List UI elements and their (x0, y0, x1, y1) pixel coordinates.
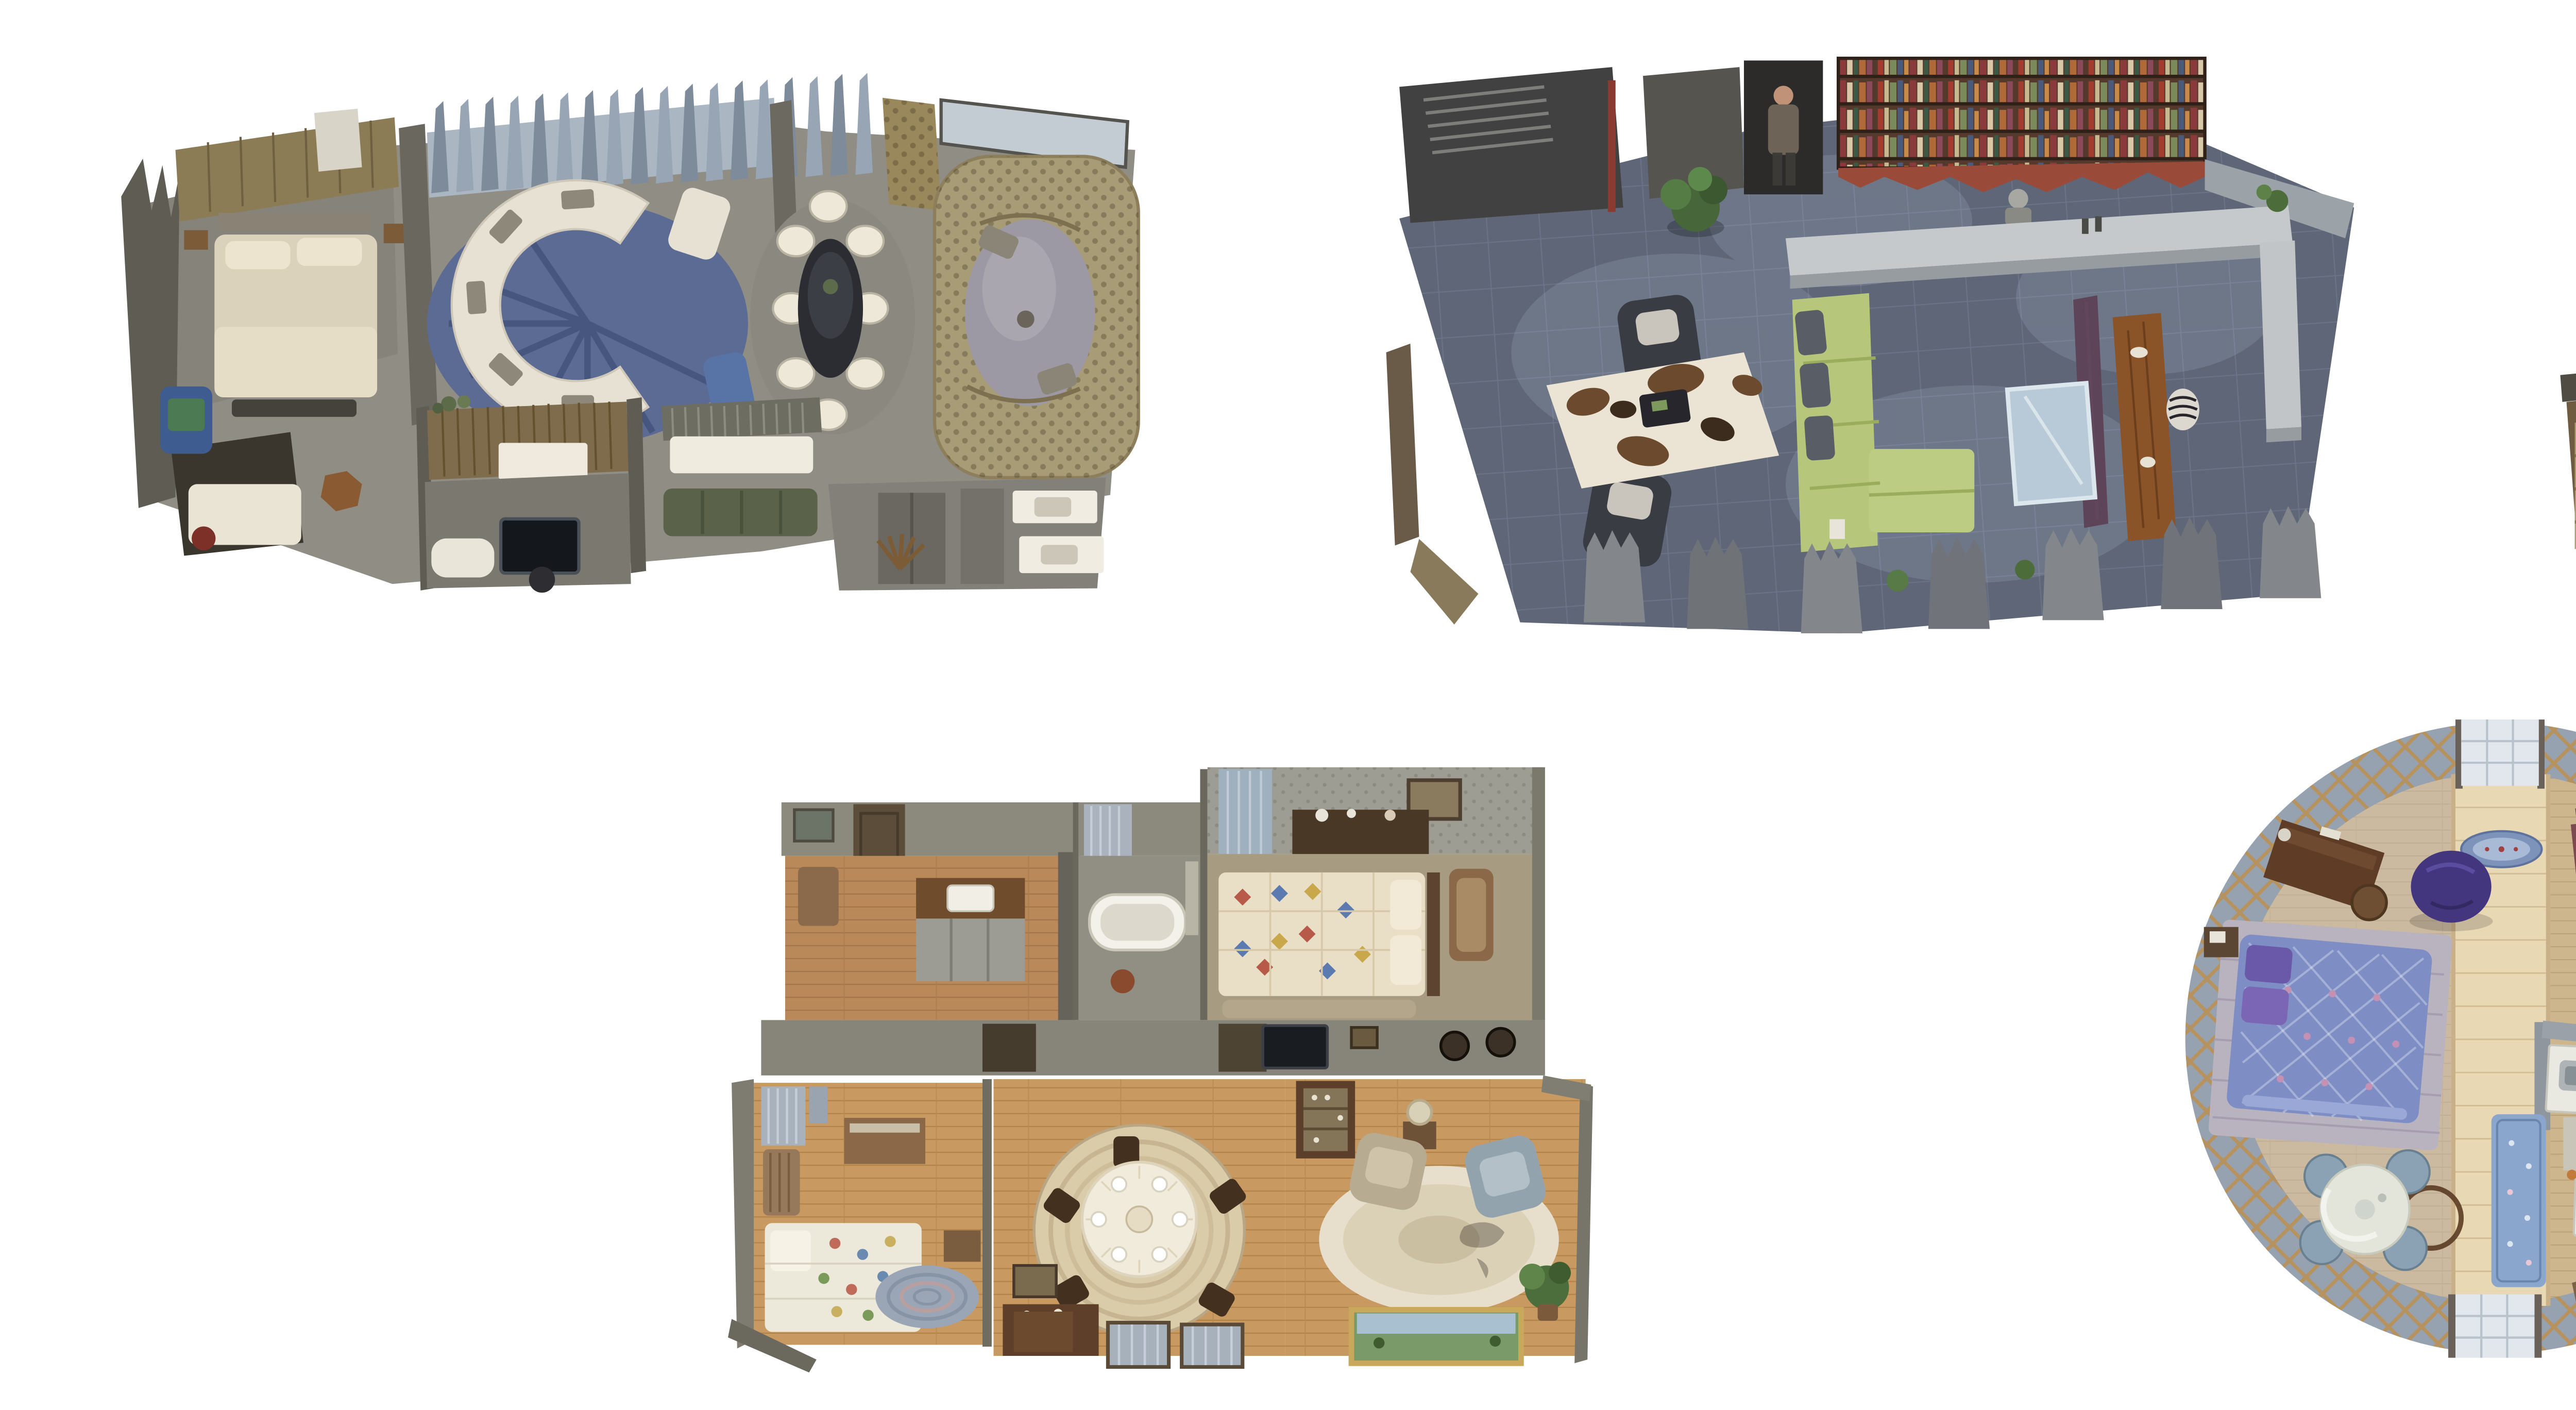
doorway-with-figure (1744, 60, 1823, 194)
bedroom-top (1208, 767, 1545, 1020)
living-room (1285, 1076, 1593, 1364)
landscape-painting (1351, 1310, 1521, 1363)
bedroom-bottom-left (728, 1079, 992, 1372)
kitchen (782, 802, 1080, 1020)
glass-floor-panel (2007, 383, 2095, 503)
floorplan-scan-5 (2141, 714, 2576, 1366)
top-left-room (1399, 67, 1623, 223)
bed-zone (2204, 919, 2453, 1151)
bed (214, 234, 377, 417)
bookshelf-wall (1838, 58, 2205, 192)
bean-bag-dark (2410, 851, 2493, 932)
bench-area (662, 397, 822, 536)
scan-collage (0, 0, 2576, 1410)
wood-alcove (416, 395, 646, 593)
bathroom (828, 478, 1106, 591)
entry-bottom (2448, 1295, 2541, 1358)
middle-wall (761, 1020, 1545, 1075)
floorplan-scan-2 (1314, 23, 2411, 660)
floorplan-scan-4 (706, 714, 1628, 1373)
braided-rug (875, 1266, 978, 1329)
bathroom (1078, 769, 1208, 1020)
floorplan-scan-3 (2517, 64, 2576, 639)
round-table (1082, 1162, 1196, 1277)
floorplan-scan-1 (67, 28, 1151, 593)
entry-top (2455, 719, 2545, 788)
side-hallway (2560, 367, 2576, 603)
armchair-beige (1347, 1130, 1430, 1213)
floral-runner (2492, 1114, 2546, 1287)
quilt-bed (1218, 872, 1440, 996)
china-cabinet (1296, 1081, 1355, 1159)
